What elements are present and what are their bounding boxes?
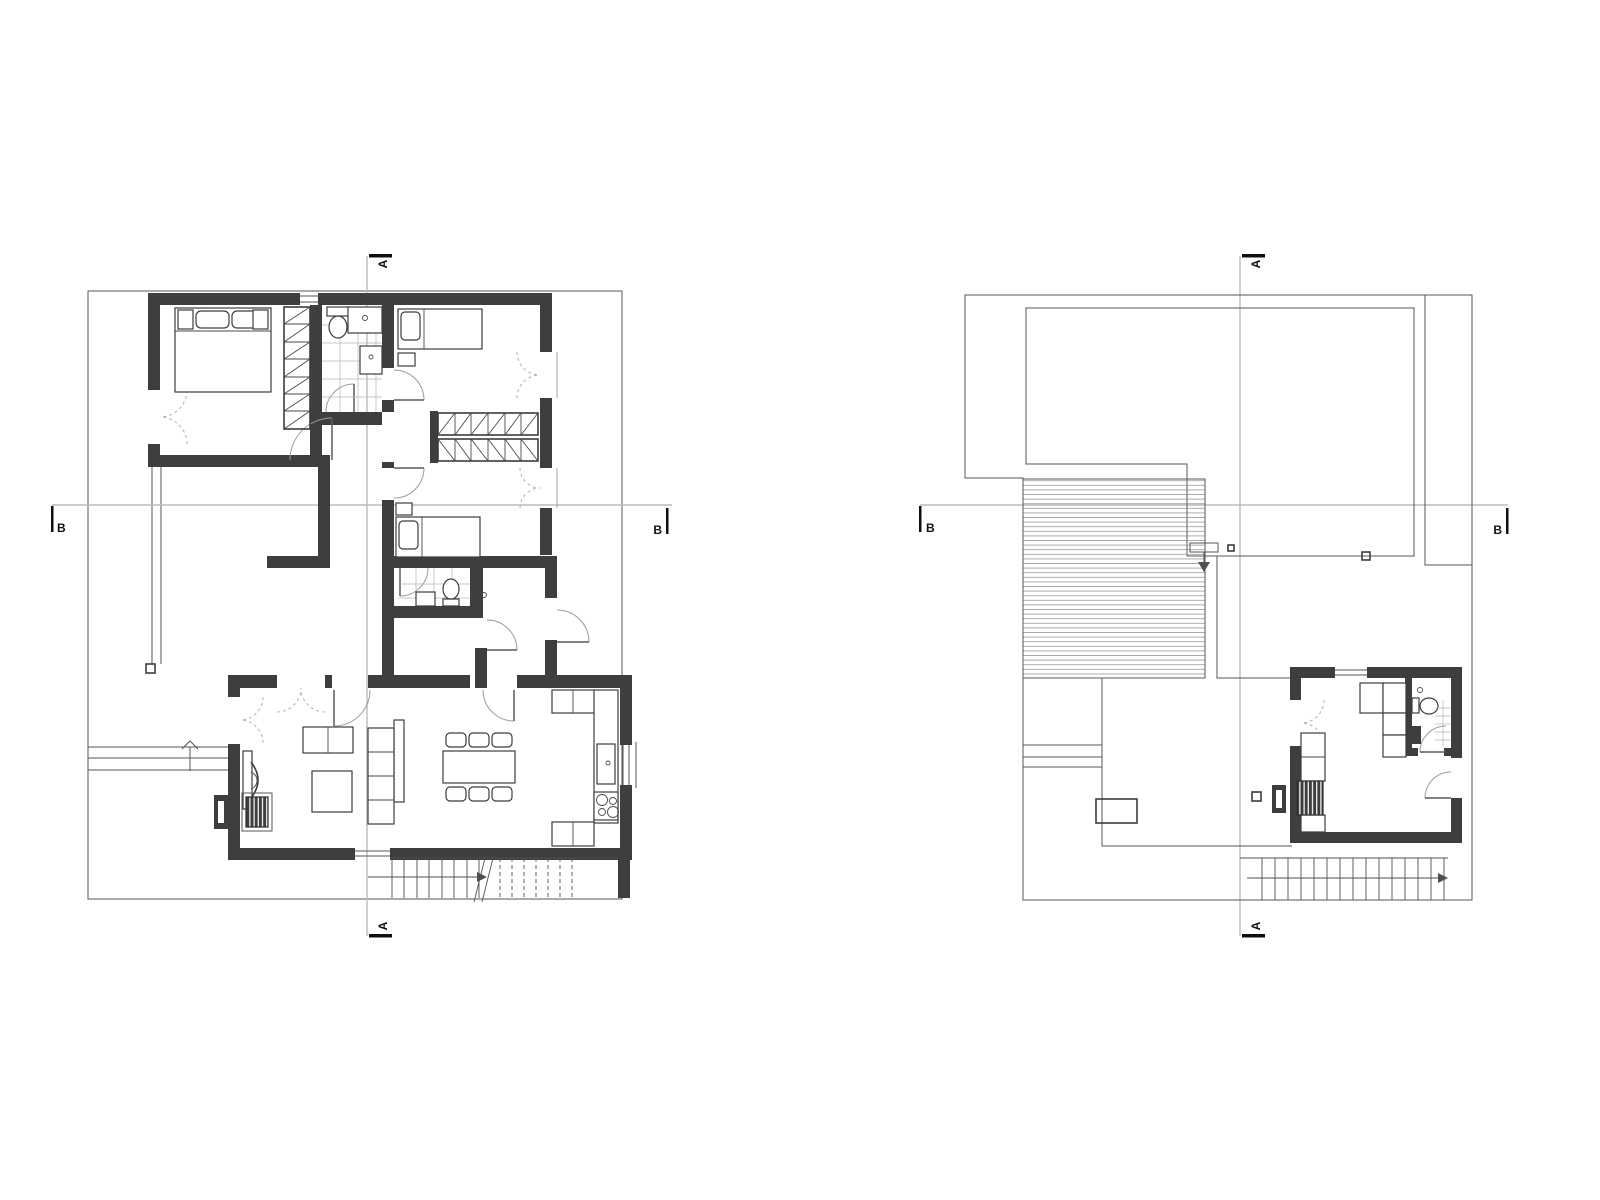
living-west-french-door	[240, 697, 263, 743]
roof-bathroom	[1412, 688, 1451, 747]
section-line-b	[919, 505, 1509, 534]
roof-plan: A A B B	[919, 254, 1509, 938]
chair	[469, 733, 489, 747]
corner-sofa	[1360, 683, 1406, 757]
nightstand	[253, 310, 268, 329]
toilet-bowl	[1420, 698, 1438, 714]
sofa	[368, 720, 404, 824]
washbasin	[416, 592, 435, 606]
living-room	[214, 720, 404, 831]
ground-floor-plan: A A B B	[51, 254, 672, 938]
section-label-a-bottom: A	[376, 921, 390, 930]
stairs	[368, 854, 618, 902]
chair	[492, 733, 512, 747]
window	[1335, 670, 1367, 675]
pillow	[401, 312, 420, 340]
nightstand	[396, 503, 412, 515]
terrace-post	[1252, 792, 1261, 801]
site-outline	[88, 291, 622, 899]
entrance-walkway	[88, 747, 230, 770]
pillow	[399, 521, 418, 549]
bedroom-3	[396, 503, 480, 557]
toilet-tank	[1412, 698, 1419, 713]
washbasin	[1412, 726, 1421, 744]
toilet-tank	[327, 307, 349, 316]
section-label-a-top: A	[376, 259, 390, 268]
pillow	[196, 311, 229, 328]
dining-table	[443, 751, 515, 783]
section-label-a-top: A	[1249, 259, 1263, 268]
drain-dot	[1418, 688, 1423, 693]
chair	[446, 733, 466, 747]
coffee-table	[312, 771, 352, 812]
stair-direction-arrow	[1438, 873, 1448, 883]
bedroom3-french-door	[520, 468, 540, 508]
section-label-b-left: B	[926, 521, 935, 535]
floor-plan-drawing: A A B B	[0, 0, 1600, 1200]
section-label-a-bottom: A	[1249, 921, 1263, 930]
toilet-tank	[443, 599, 459, 606]
master-french-door	[160, 390, 187, 444]
corridor-wardrobes	[438, 413, 538, 461]
terrace-fence	[152, 467, 161, 664]
wardrobe	[284, 307, 310, 429]
toilet-bowl	[329, 316, 347, 338]
fireplace	[1272, 781, 1323, 815]
fence-post	[146, 664, 155, 673]
nightstand	[178, 310, 193, 329]
chair	[446, 787, 466, 801]
bedroom2-french-door	[517, 352, 540, 398]
section-label-b-right: B	[653, 523, 662, 537]
bench-lines	[1023, 745, 1102, 767]
chair	[469, 787, 489, 801]
small-post	[1228, 545, 1234, 551]
washbasin	[360, 346, 382, 374]
section-line-b	[51, 505, 672, 534]
master-bedroom	[175, 307, 310, 429]
cabinet	[552, 690, 595, 713]
roof-deck	[1023, 479, 1205, 678]
section-label-b-left: B	[57, 521, 66, 535]
kitchen	[552, 690, 619, 846]
toilet-bowl	[443, 579, 459, 599]
vanity-counter	[348, 307, 382, 333]
nightstand	[398, 353, 415, 366]
section-line-a	[1240, 254, 1265, 938]
dining-area	[443, 733, 515, 801]
stair-direction-arrow	[477, 872, 487, 882]
section-label-b-right: B	[1493, 523, 1502, 537]
chair	[492, 787, 512, 801]
cabinet	[1301, 815, 1325, 832]
sofa-back	[394, 720, 404, 802]
architectural-drawing-sheet: A A B B	[0, 0, 1600, 1200]
living-north-french-door	[277, 688, 325, 712]
bedroom-2	[398, 309, 482, 366]
stairs	[1240, 858, 1448, 900]
